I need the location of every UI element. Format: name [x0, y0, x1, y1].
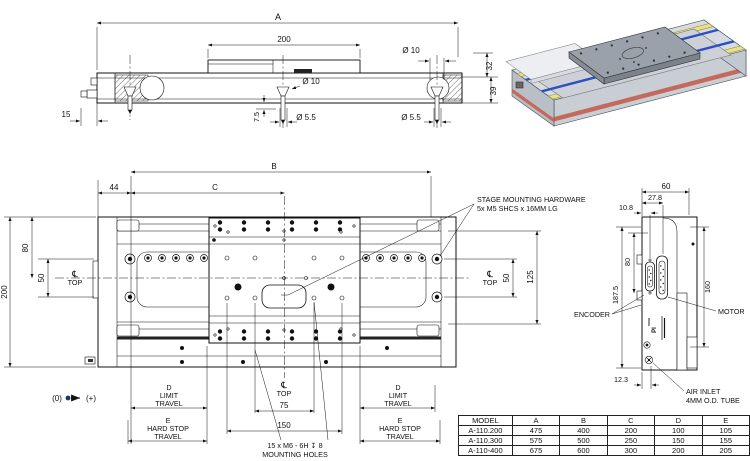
- table-cell: A-110-400: [459, 446, 513, 456]
- svg-text:TRAVEL: TRAVEL: [384, 399, 411, 408]
- dim-150-label: 150: [277, 421, 291, 430]
- dim-a-label: A: [275, 12, 281, 22]
- dim-200v-label: 200: [0, 285, 9, 299]
- note-stage-mounting-2: 5x M5 SHCS x 16MM LG: [477, 204, 558, 213]
- origin-zero-label: (0): [52, 394, 62, 403]
- origin-dot: [66, 396, 71, 401]
- svg-text:TRAVEL: TRAVEL: [155, 399, 182, 408]
- travel-direction: (0) (+): [52, 394, 96, 403]
- air-inlet-label-2: 4MM O.D. TUBE: [686, 396, 740, 405]
- table-row: A-110-400 675 600 300 200 205: [459, 446, 750, 456]
- table-header-row: MODEL A B C D E: [459, 416, 750, 426]
- table-cell: 600: [560, 446, 607, 456]
- svg-text:TRAVEL: TRAVEL: [386, 432, 413, 441]
- carriage-slot: [262, 285, 306, 308]
- connector-tab: [91, 78, 97, 85]
- dim-dia10-center-label: Ø 10: [302, 77, 320, 86]
- dim-50-left-label: 50: [37, 273, 46, 282]
- connector-tab: [81, 91, 87, 97]
- table-header-cell: MODEL: [459, 416, 513, 426]
- table-header-cell: D: [655, 416, 702, 426]
- side-view: A 200 Ø 10 32 39 15 7.5 Ø 5: [62, 12, 498, 130]
- dim-39-label: 39: [489, 86, 498, 95]
- note-stage-mounting-1: STAGE MOUNTING HARDWARE: [477, 195, 586, 204]
- centerline-top-label: TOP: [277, 389, 292, 398]
- table-row: A-110.300 575 500 250 150 155: [459, 436, 750, 446]
- table-header-cell: B: [560, 416, 607, 426]
- iso-view: [506, 20, 746, 126]
- dim-15-label: 15: [62, 110, 71, 119]
- dim-44-label: 44: [110, 183, 119, 192]
- dim-c-label: C: [212, 183, 218, 192]
- dim-dia10-right-label: Ø 10: [402, 46, 420, 55]
- dim-60-label: 60: [662, 182, 671, 191]
- origin-plus-label: (+): [86, 394, 96, 403]
- table-row: A-110.200 475 400 200 100 105: [459, 426, 750, 436]
- motor-connector: [657, 256, 668, 299]
- note-mounting-holes-1: 15 x M6 - 6H ↧ 8: [267, 441, 322, 450]
- table-header-cell: A: [512, 416, 559, 426]
- dim-12-3-label: 12.3: [614, 375, 628, 384]
- table-cell: 475: [512, 426, 559, 436]
- svg-text:PI: PI: [652, 327, 658, 333]
- dim-27-8-label: 27.8: [648, 193, 662, 202]
- dim-10-8-label: 10.8: [619, 203, 633, 212]
- table-cell: 500: [560, 436, 607, 446]
- centerline-top-label: TOP: [68, 278, 83, 287]
- connector-tab: [87, 90, 97, 98]
- table-cell: 105: [702, 426, 750, 436]
- dim-50-right-label: 50: [502, 273, 511, 282]
- table-cell: 400: [560, 426, 607, 436]
- table-cell: A-110.300: [459, 436, 513, 446]
- table-cell: 155: [702, 436, 750, 446]
- connector-tab: [93, 261, 98, 298]
- dim-80-end-label: 80: [623, 258, 632, 266]
- travel-table: MODEL A B C D E A-110.200 475 400 200 10…: [458, 415, 750, 456]
- dim-dia5-5-center-label: Ø 5.5: [296, 113, 316, 122]
- dim-200-label: 200: [277, 35, 291, 44]
- note-mounting-holes-2: MOUNTING HOLES: [262, 450, 328, 459]
- encoder-connector: [646, 259, 655, 294]
- table-cell: 200: [655, 446, 702, 456]
- table-cell: 200: [607, 426, 654, 436]
- table-cell: 300: [607, 446, 654, 456]
- table-cell: 100: [655, 426, 702, 436]
- drawing-svg: A 200 Ø 10 32 39 15 7.5 Ø 5: [0, 0, 750, 461]
- dim-160-label: 160: [703, 281, 712, 293]
- dim-187-5-label: 187.5: [611, 286, 620, 304]
- table-header-cell: C: [607, 416, 654, 426]
- svg-text:TRAVEL: TRAVEL: [154, 432, 181, 441]
- dim-75-label: 75: [280, 401, 289, 410]
- motor-label: MOTOR: [718, 307, 745, 316]
- table-cell: 250: [607, 436, 654, 446]
- table-cell: 675: [512, 446, 559, 456]
- dim-125-label: 125: [526, 270, 535, 284]
- table-header-cell: E: [702, 416, 750, 426]
- dim-80-label: 80: [21, 243, 30, 252]
- table-cell: 150: [655, 436, 702, 446]
- air-inlet-label-1: AIR INLET: [686, 387, 721, 396]
- table-cell: 205: [702, 446, 750, 456]
- table-cell: A-110.200: [459, 426, 513, 436]
- table-cell: 575: [512, 436, 559, 446]
- dim-dia5-5-right-label: Ø 5.5: [401, 113, 421, 122]
- encoder-label: ENCODER: [574, 310, 610, 319]
- end-view: PI 60 27.8 10.8 80 187.5: [574, 182, 745, 405]
- carriage-side: [208, 60, 360, 73]
- encoder-readhead: [294, 69, 312, 73]
- centerline-top-label: TOP: [483, 278, 498, 287]
- dim-b-label: B: [271, 162, 276, 171]
- dim-7-5-label: 7.5: [252, 112, 261, 122]
- dim-32-label: 32: [485, 61, 494, 70]
- drawing-sheet: A 200 Ø 10 32 39 15 7.5 Ø 5: [0, 0, 750, 461]
- iso-end-connector: [516, 82, 523, 88]
